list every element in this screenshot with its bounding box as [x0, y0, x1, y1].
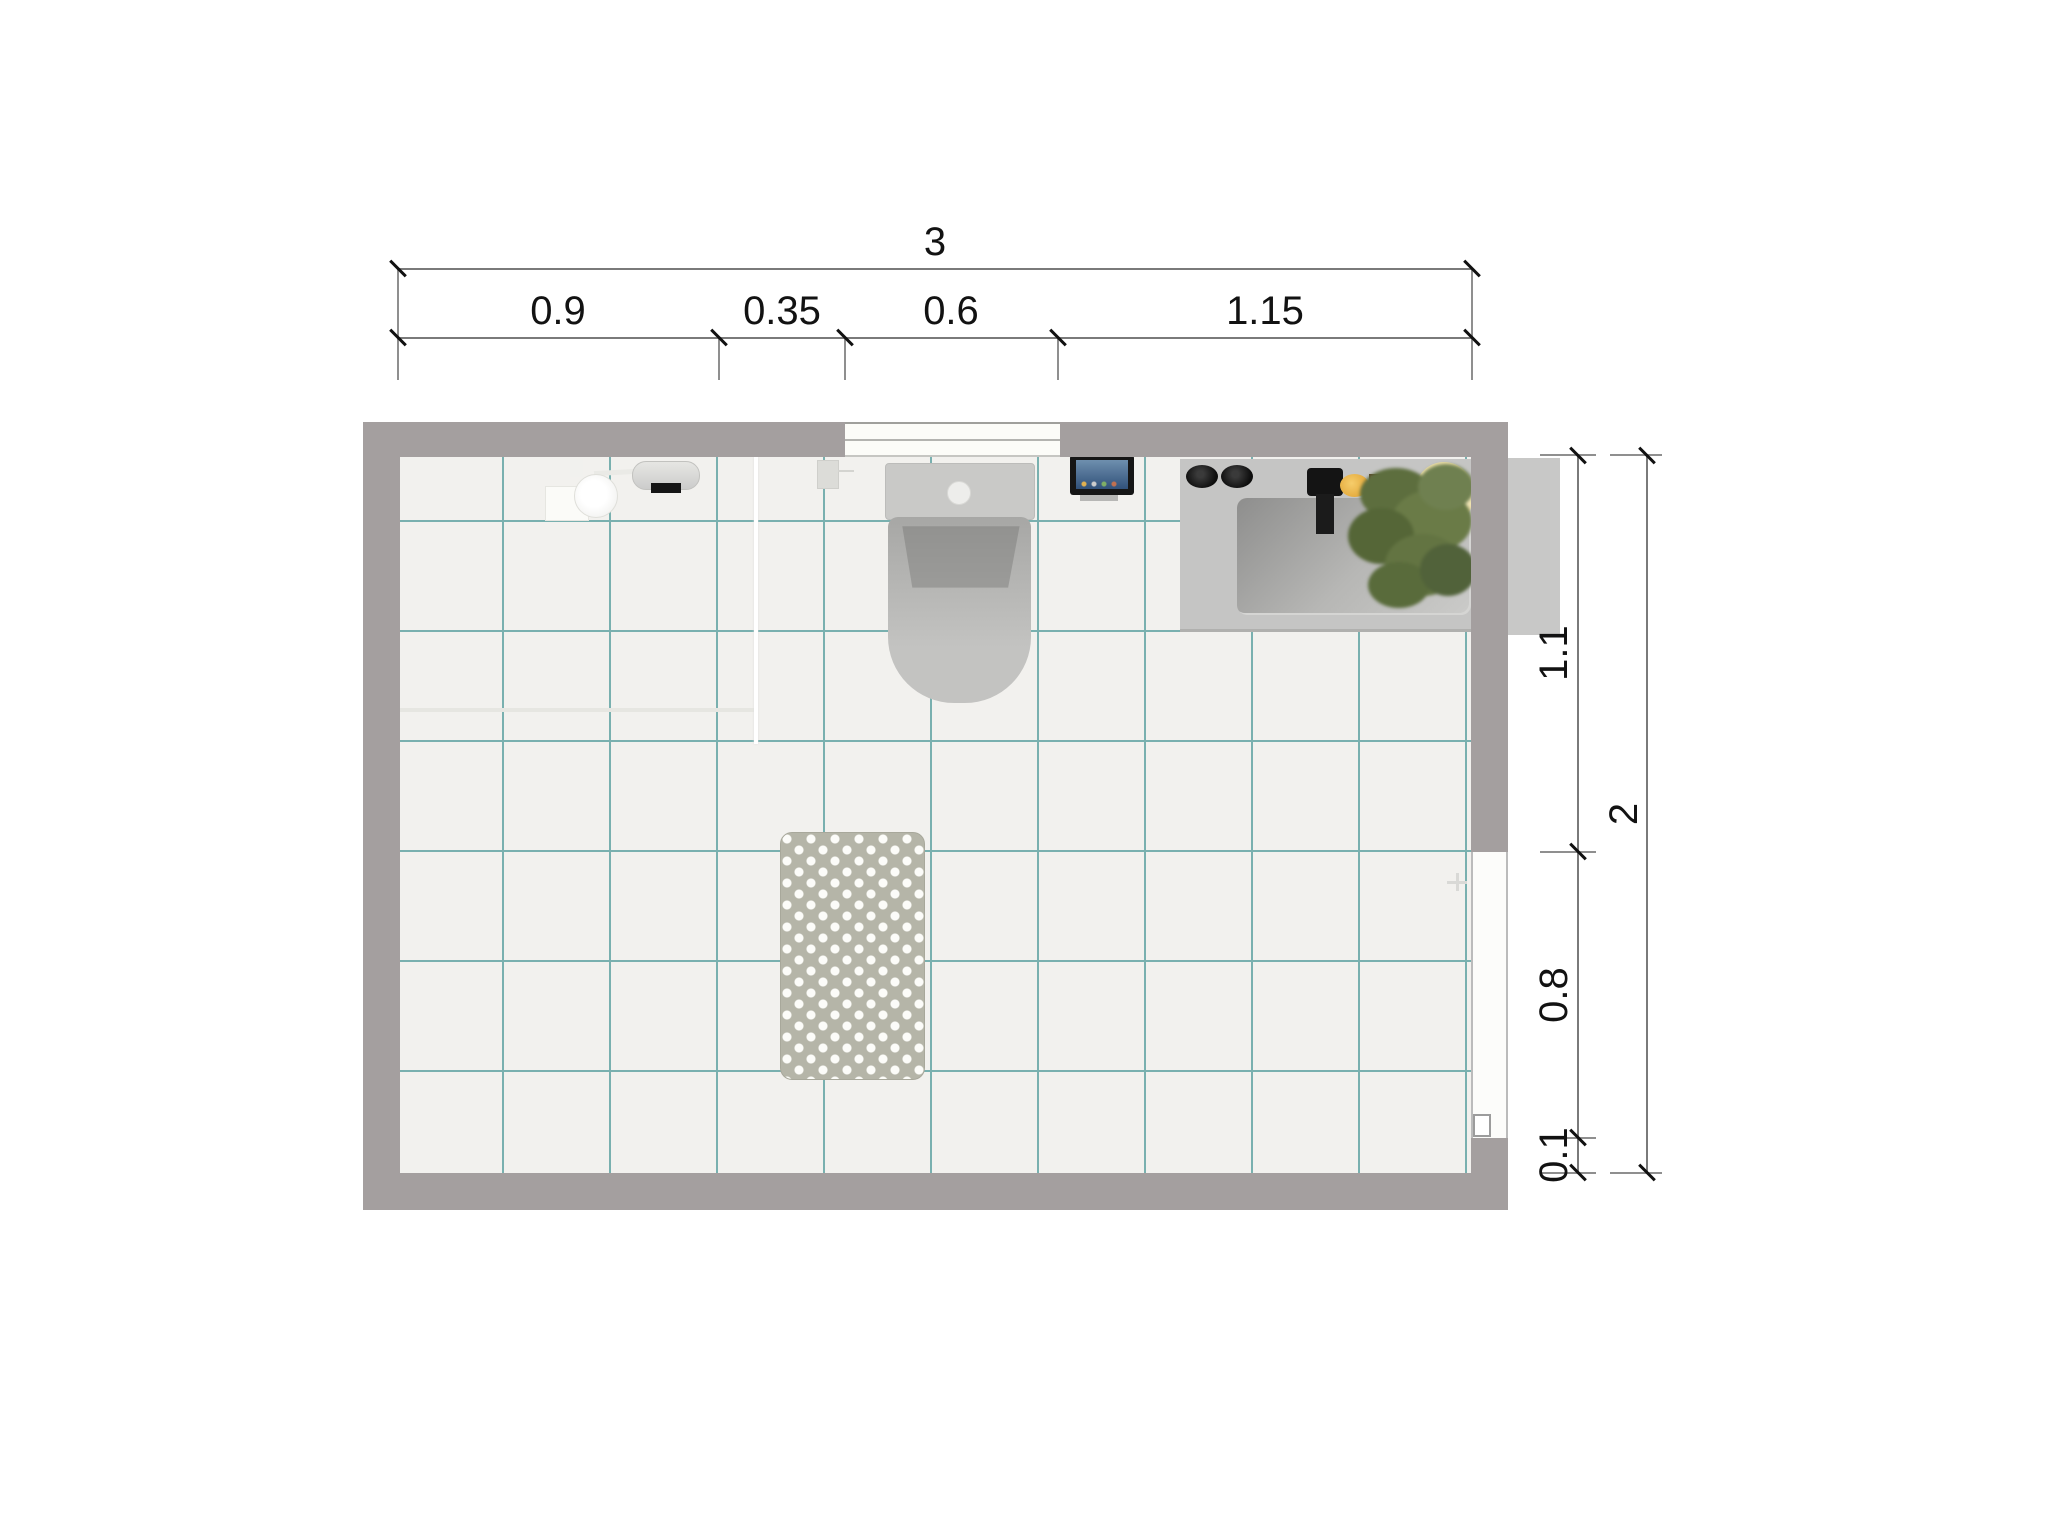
- dimension-label-segment: 1.1: [1530, 593, 1578, 713]
- dimension-label-segment: 0.9: [508, 289, 608, 333]
- toilet-flush-button[interactable]: [947, 481, 971, 505]
- extension-line: [1540, 454, 1596, 456]
- wall-left[interactable]: [363, 422, 400, 1210]
- toilet-lid-shadow: [888, 517, 1031, 703]
- dimension-label-segment: 0.35: [722, 289, 842, 333]
- door-swing-marker: [1456, 873, 1459, 891]
- window-handle-object: [817, 460, 839, 489]
- plant[interactable]: [1330, 450, 1480, 620]
- dimension-label-segment: 0.1: [1530, 1095, 1578, 1215]
- shower-head[interactable]: [574, 474, 618, 518]
- dimension-line-right-segments: [1577, 455, 1579, 1173]
- extension-line: [1610, 1172, 1662, 1174]
- window[interactable]: [845, 422, 1060, 457]
- dimension-line-top-total: [398, 268, 1472, 270]
- shower-shadow-line: [400, 708, 756, 712]
- window-handle-stub: [838, 470, 854, 472]
- wall-bottom[interactable]: [363, 1173, 1508, 1210]
- toilet-bowl-lid[interactable]: [888, 517, 1031, 703]
- cylinder-label-strip: [651, 483, 681, 493]
- faucet-knob-left[interactable]: [1186, 465, 1218, 488]
- extension-line: [1540, 851, 1596, 853]
- dimension-label-segment: 0.8: [1530, 935, 1578, 1055]
- dimension-label-segment: 1.15: [1205, 289, 1325, 333]
- door-opening[interactable]: [1471, 852, 1508, 1138]
- faucet-knob-right[interactable]: [1221, 465, 1253, 488]
- tablet-screen: [1076, 460, 1128, 489]
- wall-tablet[interactable]: [1070, 455, 1134, 495]
- dimension-label-total-width: 3: [885, 220, 985, 264]
- door-threshold-square: [1473, 1114, 1491, 1137]
- extension-line: [1057, 337, 1059, 380]
- tablet-shelf: [1080, 494, 1118, 501]
- shower-pole: [570, 459, 583, 477]
- bath-mat[interactable]: [780, 832, 925, 1080]
- shower-glass-panel[interactable]: [754, 457, 758, 744]
- extension-line: [1610, 454, 1662, 456]
- dimension-label-total-height: 2: [1600, 754, 1648, 874]
- window-frame-line: [845, 439, 1060, 441]
- dimension-line-top-segments: [398, 337, 1472, 339]
- plant-leaf-cluster: [1418, 464, 1474, 510]
- extension-line: [397, 268, 399, 380]
- extension-line: [718, 337, 720, 380]
- plant-leaf-cluster: [1420, 544, 1476, 596]
- wall-right-upper[interactable]: [1471, 422, 1508, 852]
- wall-top-right-segment[interactable]: [1060, 422, 1508, 457]
- floor-plan-canvas: 3 0.9 0.35 0.6 1.15 1.1 0.8 0.1 2: [0, 0, 2048, 1536]
- extension-line: [844, 337, 846, 380]
- dimension-label-segment: 0.6: [901, 289, 1001, 333]
- extension-line: [1471, 268, 1473, 380]
- wall-top-left-segment[interactable]: [363, 422, 845, 457]
